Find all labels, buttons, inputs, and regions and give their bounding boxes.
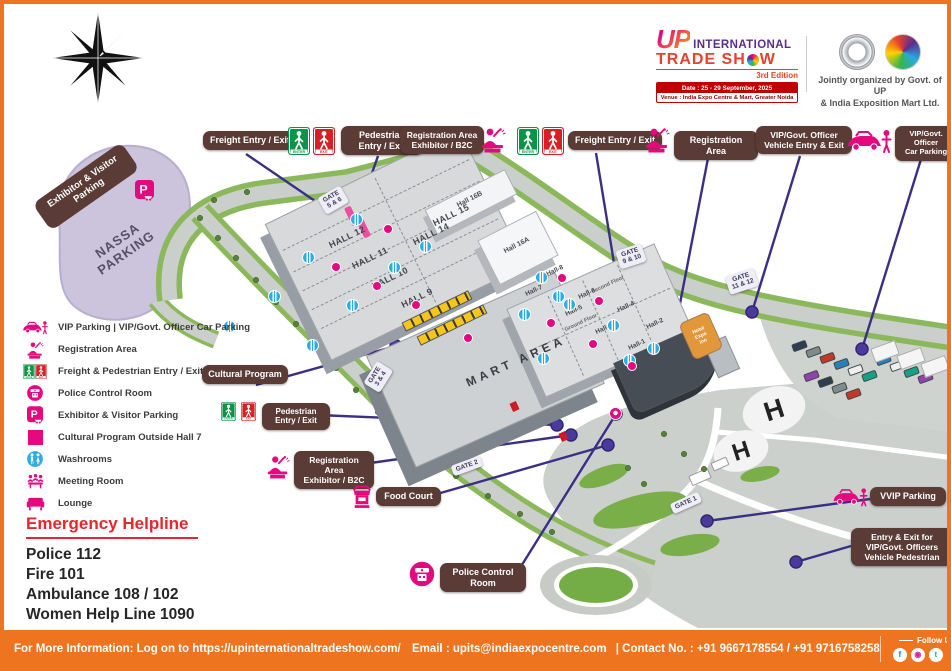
cultural-square-icon (22, 430, 48, 445)
footer-bar: For More Information: Log on to https://… (4, 630, 947, 667)
tree-icon (353, 387, 359, 393)
leader-dot (746, 306, 758, 318)
meeting-room-icon (372, 281, 382, 291)
header-divider (806, 36, 807, 92)
logo-edition-text: 3rd Edition (656, 69, 798, 80)
tree-icon (333, 365, 339, 371)
callout-vip-car-parking: VIP/Govt. Officer Car Parking (895, 126, 951, 161)
linkedin-icon[interactable]: in (947, 648, 951, 662)
callout-vip-vehicle-entry-exit: VIP/Govt. Officer Vehicle Entry & Exit (756, 126, 852, 154)
svg-text:EXIT: EXIT (320, 150, 329, 154)
registration-icon (480, 125, 506, 158)
callout-food-court: Food Court (376, 487, 441, 506)
legend-item: PExhibitor & Visitor Parking (22, 404, 250, 426)
tree-icon (485, 493, 491, 499)
leader-dot (790, 556, 802, 568)
svg-text:EXIT: EXIT (549, 150, 558, 154)
callout-vip-entry-exit-bottom: Entry & Exit for VIP/Govt. Officers Vehi… (851, 528, 951, 566)
emergency-line: Fire 101 (26, 565, 198, 585)
tree-icon (253, 277, 259, 283)
callout-registration-area-b2c-left: Registration Area Exhibitor / B2C (294, 451, 374, 489)
leader-dot (602, 439, 614, 451)
washroom-icon (419, 240, 432, 253)
food-court-icon (352, 485, 372, 514)
callout-freight-entry-exit: Freight Entry / Exit (203, 131, 297, 150)
registration-icon (22, 340, 48, 359)
washroom-icon (346, 299, 359, 312)
facebook-icon[interactable]: f (893, 648, 907, 662)
tree-icon (215, 235, 221, 241)
tree-icon (641, 481, 647, 487)
legend-label: VIP Parking | VIP/Govt. Officer Car Park… (58, 322, 250, 333)
callout-police-control-room: Police Control Room (440, 563, 526, 592)
vip-car-person-icon (846, 128, 892, 159)
tree-icon (244, 189, 250, 195)
meeting-room-icon (383, 224, 393, 234)
legend-label: Meeting Room (58, 476, 123, 487)
washroom-icon (388, 261, 401, 274)
tree-icon (211, 197, 217, 203)
tree-icon (701, 466, 707, 472)
exhibitor-parking-icon: P (22, 406, 48, 424)
lounge-icon (22, 495, 48, 511)
svg-text:ENTER: ENTER (522, 150, 535, 154)
tree-icon (233, 255, 239, 261)
twitter-icon[interactable]: t (929, 648, 943, 662)
venue-map-poster: H H UP INTERNATIONAL TRADE SHW 3 (0, 0, 951, 671)
enter-exit-icon: ENTEREXIT (22, 364, 48, 379)
legend-item: Washrooms (22, 448, 250, 470)
police-icon (408, 560, 436, 593)
washroom-icon (350, 213, 363, 226)
roundabout (540, 555, 652, 615)
callout-pedestrian-entry-exit-left: Pedestrian Entry / Exit (262, 403, 330, 430)
callout-registration-area-b2c: Registration Area Exhibitor / B2C (400, 126, 484, 154)
exhibitor-parking-icon: P (135, 180, 154, 206)
footer-info-link[interactable]: For More Information: Log on to https://… (14, 643, 401, 655)
callout-registration-area: Registration Area (674, 131, 758, 160)
washroom-icon (537, 352, 550, 365)
legend-item: Lounge (22, 492, 250, 514)
footer-contact: | Contact No. : +91 9667178554 / +91 971… (616, 643, 880, 655)
legend-item: VIP Parking | VIP/Govt. Officer Car Park… (22, 316, 250, 338)
event-logo: UP INTERNATIONAL TRADE SHW 3rd Edition D… (656, 28, 798, 103)
meeting-room-icon (627, 361, 637, 371)
follow-us-block: Follow Us f◉tin▶ (880, 636, 951, 662)
tree-icon (375, 409, 381, 415)
vip-car-person-icon (832, 485, 868, 514)
tree-icon (625, 465, 631, 471)
compass-rose-icon (52, 12, 144, 104)
emergency-rule (26, 537, 198, 539)
registration-icon (644, 125, 670, 158)
leader-dot (551, 419, 563, 431)
event-venue: Venue : India Expo Centre & Mart, Greate… (657, 93, 797, 102)
registration-icon (266, 453, 290, 484)
organizer-text: & India Exposition Mart Ltd. (814, 98, 946, 109)
leader-dot (856, 343, 868, 355)
logo-o-icon (747, 54, 759, 66)
svg-text:ENTER: ENTER (26, 376, 33, 378)
washroom-icon (647, 342, 660, 355)
legend-item: Meeting Room (22, 470, 250, 492)
logo-date-venue-box: Date : 25 - 29 September, 2025 Venue : I… (656, 82, 798, 103)
event-date: Date : 25 - 29 September, 2025 (657, 83, 797, 93)
legend-label: Exhibitor & Visitor Parking (58, 410, 178, 421)
legend-label: Freight & Pedestrian Entry / Exit (58, 366, 203, 377)
legend-item: Police Control Room (22, 382, 250, 404)
logo-international-text: INTERNATIONAL (693, 39, 791, 51)
legend-label: Cultural Program Outside Hall 7 (58, 432, 202, 443)
tree-icon (197, 215, 203, 221)
enter-icon: ENTER (517, 127, 539, 160)
meeting-room-icon (331, 262, 341, 272)
exit-icon: EXIT (313, 127, 335, 160)
tree-icon (661, 431, 667, 437)
washroom-icon (552, 290, 565, 303)
meeting-room-icon (546, 318, 556, 328)
exit-icon: EXIT (542, 127, 564, 160)
washroom-icon (306, 339, 319, 352)
logo-tradeshow-text: TRADE SHW (656, 51, 798, 69)
iem-logo-icon (885, 34, 921, 70)
tree-icon (293, 321, 299, 327)
emergency-line: Women Help Line 1090 (26, 605, 198, 625)
svg-text:P: P (139, 182, 147, 196)
legend-label: Registration Area (58, 344, 137, 355)
washroom-icon (302, 251, 315, 264)
meeting-room-icon (588, 339, 598, 349)
washroom-icon (268, 290, 281, 303)
vip-parking-icon (22, 319, 48, 336)
emergency-title: Emergency Helpline (26, 514, 198, 534)
washroom-icon (607, 319, 620, 332)
follow-us-label: Follow Us (893, 636, 951, 645)
callout-vvip-parking: VVIP Parking (870, 487, 946, 506)
meeting-icon (22, 473, 48, 489)
meeting-room-icon (594, 296, 604, 306)
footer-email-link[interactable]: Email : upits@indiaexpocentre.com (412, 643, 607, 655)
legend-label: Washrooms (58, 454, 112, 465)
washroom-icon (563, 298, 576, 311)
svg-text:P: P (31, 409, 38, 420)
police-icon (609, 407, 622, 420)
leader-dot (701, 515, 713, 527)
meeting-room-icon (557, 273, 567, 283)
tree-icon (549, 529, 555, 535)
emergency-line: Ambulance 108 / 102 (26, 585, 198, 605)
organizer-text: Jointly organized by Govt. of UP (814, 75, 946, 98)
tree-icon (517, 511, 523, 517)
tree-icon (681, 451, 687, 457)
washroom-icon (22, 450, 48, 468)
leader-line (752, 156, 800, 312)
washroom-icon (518, 308, 531, 321)
map-legend: VIP Parking | VIP/Govt. Officer Car Park… (22, 316, 250, 514)
up-govt-emblem-icon (839, 34, 875, 70)
meeting-room-icon (411, 300, 421, 310)
emergency-line: Police 112 (26, 545, 198, 565)
legend-item: ENTEREXITFreight & Pedestrian Entry / Ex… (22, 360, 250, 382)
washroom-icon (535, 271, 548, 284)
legend-label: Lounge (58, 498, 92, 509)
enter-icon: ENTER (288, 127, 310, 160)
instagram-icon[interactable]: ◉ (911, 648, 925, 662)
emergency-helpline: Emergency Helpline Police 112Fire 101Amb… (26, 514, 198, 625)
legend-label: Police Control Room (58, 388, 152, 399)
logo-up-text: UP (656, 28, 690, 51)
svg-text:ENTER: ENTER (293, 150, 306, 154)
organizer-block: Jointly organized by Govt. of UP & India… (814, 34, 946, 109)
legend-item: Cultural Program Outside Hall 7 (22, 426, 250, 448)
police-icon (22, 384, 48, 402)
meeting-room-icon (463, 333, 473, 343)
legend-item: Registration Area (22, 338, 250, 360)
